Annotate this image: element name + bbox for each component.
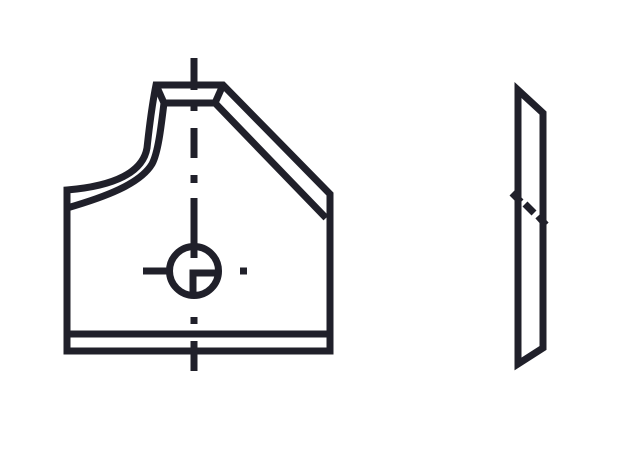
front-view-outline xyxy=(67,85,330,351)
insert-knife-technical-drawing xyxy=(0,0,630,451)
drawing-canvas xyxy=(0,0,630,451)
side-view-outline xyxy=(518,90,543,364)
